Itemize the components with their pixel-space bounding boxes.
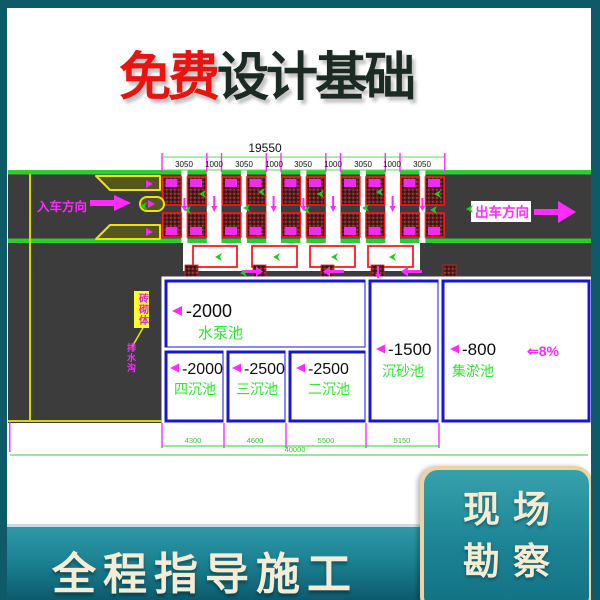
title-highlight: 免费 bbox=[119, 49, 217, 107]
dim-seg: 3050 bbox=[413, 160, 431, 169]
page-title: 免费设计基础 bbox=[0, 52, 600, 104]
bottom-dimension: 4300 4600 5500 5150 40000 bbox=[10, 423, 588, 455]
dim-seg: 1000 bbox=[324, 160, 342, 169]
corner-badge: 现场 勘察 bbox=[420, 466, 593, 600]
pool-depth: -2500 bbox=[308, 361, 349, 378]
pool-depth: -800 bbox=[462, 340, 496, 359]
dim-seg: 1000 bbox=[205, 160, 223, 169]
pool-name: 四沉池 bbox=[174, 381, 216, 397]
pool-name: 沉砂池 bbox=[382, 363, 424, 379]
exit-label: 出车方向 bbox=[475, 204, 529, 220]
dim-seg: 3050 bbox=[175, 160, 193, 169]
corner-line-2: 勘察 bbox=[424, 536, 589, 588]
pool-name: 三沉池 bbox=[236, 381, 278, 397]
pool-depth: -2000 bbox=[186, 301, 232, 321]
lane-line-top bbox=[8, 170, 591, 175]
pool-name: 集淤池 bbox=[452, 363, 494, 379]
dim-seg: 5500 bbox=[318, 436, 335, 445]
side-vertical-label: 排水沟 bbox=[125, 343, 138, 373]
entry-label: 入车方向 bbox=[37, 199, 87, 214]
promo-image: 免费设计基础 bbox=[0, 0, 600, 600]
banner-label: 全程指导施工 bbox=[52, 538, 358, 600]
callout-label: 砖砌体 bbox=[134, 291, 149, 328]
slope-label: ⇐8% bbox=[527, 343, 560, 359]
dim-seg: 4300 bbox=[185, 436, 202, 445]
dim-seg: 3050 bbox=[354, 160, 372, 169]
pool-depth: -1500 bbox=[388, 340, 431, 359]
dim-seg: 3050 bbox=[235, 160, 253, 169]
pool-name: 水泵池 bbox=[198, 325, 243, 342]
dim-seg: 1000 bbox=[383, 160, 401, 169]
corner-line-1: 现场 bbox=[424, 484, 589, 536]
dim-seg: 3050 bbox=[294, 160, 312, 169]
pool-depth: -2000 bbox=[182, 361, 223, 378]
pool-name: 二沉池 bbox=[308, 381, 350, 397]
top-dimension: 19550 3050 1000 3050 1000 3050 1000 3050… bbox=[162, 141, 445, 172]
dim-seg: 5150 bbox=[394, 436, 411, 445]
dim-seg: 4600 bbox=[247, 436, 264, 445]
title-rest: 设计基础 bbox=[217, 49, 413, 107]
dim-seg: 1000 bbox=[265, 160, 283, 169]
bottom-total-dim: 40000 bbox=[285, 445, 306, 454]
top-total-dim: 19550 bbox=[248, 141, 282, 155]
pool-depth: -2500 bbox=[244, 361, 285, 378]
